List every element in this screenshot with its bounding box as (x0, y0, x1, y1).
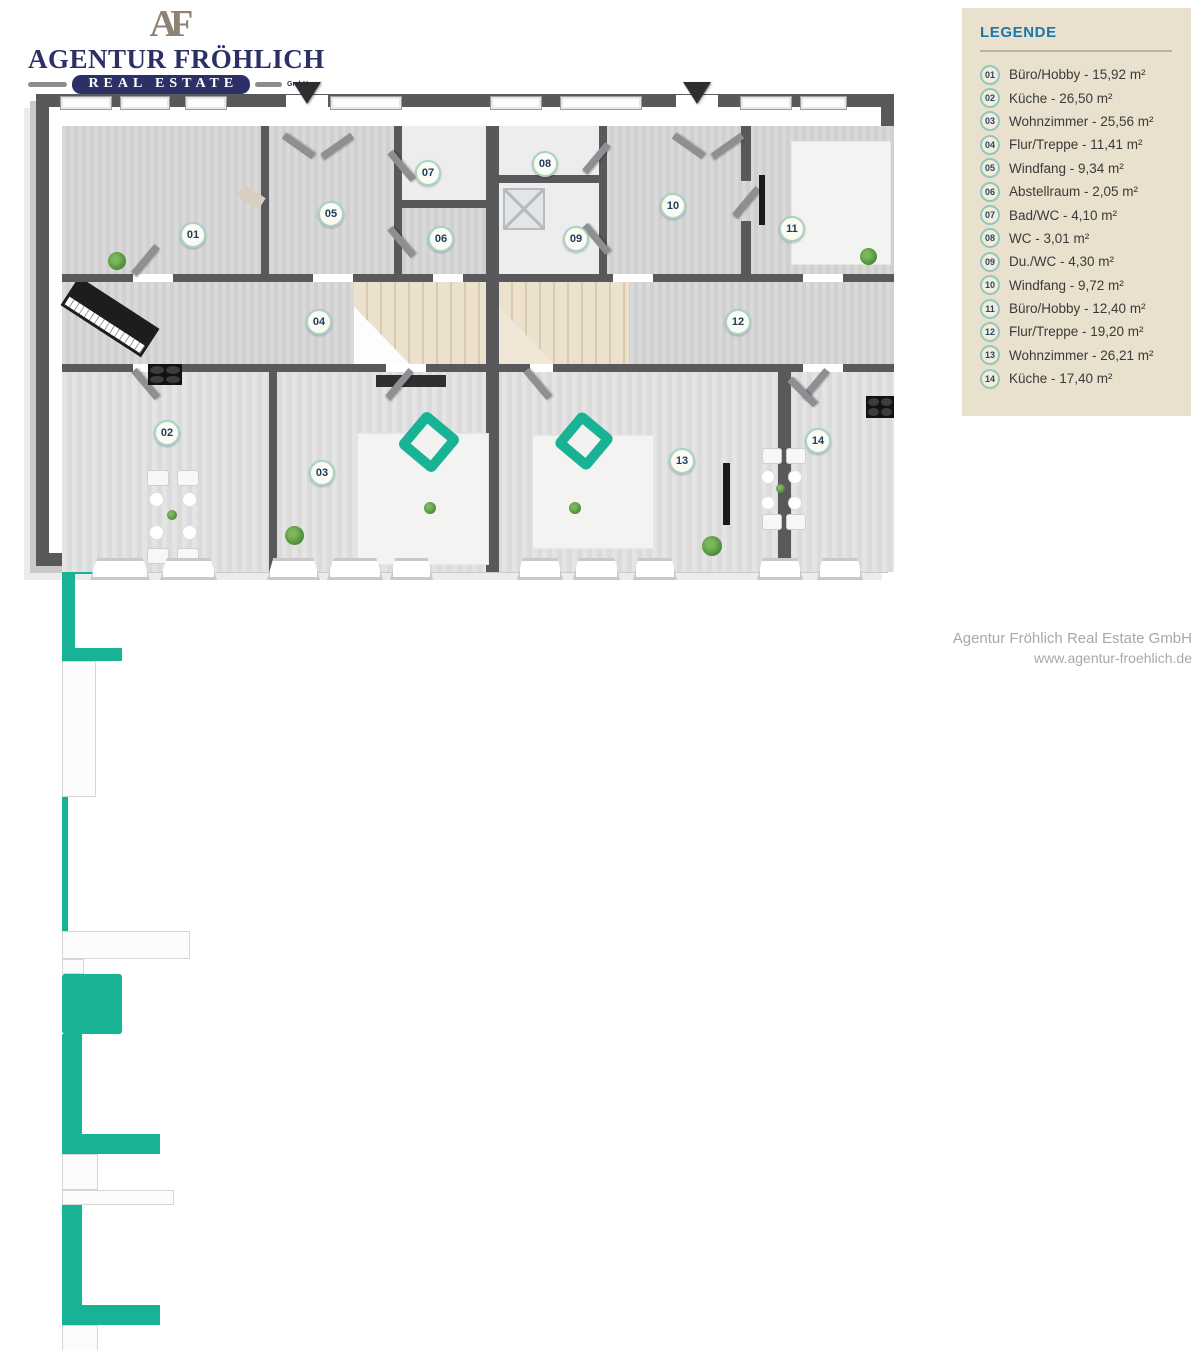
sofa-13-seatrow (62, 1305, 160, 1325)
floor-plan-interior: 01 05 07 06 08 09 10 11 04 12 02 03 13 1… (62, 126, 894, 572)
legend-item-label: Büro/Hobby - 12,40 m² (1009, 301, 1146, 316)
legend-item-number: 11 (980, 299, 1000, 319)
legend-item-number: 01 (980, 65, 1000, 85)
sofa-03-back (62, 1034, 82, 1134)
dining-table-02 (62, 974, 122, 1034)
building-outline: 01 05 07 06 08 09 10 11 04 12 02 03 13 1… (36, 94, 894, 566)
legend-item-label: WC - 3,01 m² (1009, 231, 1089, 246)
wall-corridor-top (463, 274, 613, 282)
footer-company: Agentur Fröhlich Real Estate GmbH (953, 629, 1192, 649)
wall-07-06 (402, 200, 486, 208)
chair-02 (177, 470, 199, 486)
legend-item-label: Bad/WC - 4,10 m² (1009, 208, 1117, 223)
plate (149, 492, 164, 507)
room-badge-02: 02 (154, 420, 180, 446)
legend-item-label: Flur/Treppe - 11,41 m² (1009, 137, 1143, 152)
legend-item-label: Windfang - 9,34 m² (1009, 161, 1124, 176)
window-top (490, 96, 542, 110)
wall-corridor-bottom (553, 364, 803, 372)
legend-list: 01Büro/Hobby - 15,92 m² 02Küche - 26,50 … (980, 63, 1191, 390)
legend-item-number: 12 (980, 322, 1000, 342)
sofa-11-back (62, 574, 75, 648)
coffee-table-13 (62, 1325, 98, 1350)
room-badge-11: 11 (779, 216, 805, 242)
bay-window (90, 558, 150, 580)
entrance-arrow-icon (683, 82, 711, 104)
legend-item: 06Abstellraum - 2,05 m² (980, 180, 1191, 203)
legend-item-number: 03 (980, 111, 1000, 131)
coffee-table-03 (62, 1154, 98, 1190)
legend-panel: LEGENDE 01Büro/Hobby - 15,92 m² 02Küche … (962, 8, 1191, 416)
legend-item: 01Büro/Hobby - 15,92 m² (980, 63, 1191, 86)
bathroom-07-floor (402, 126, 486, 200)
table-plant-03 (424, 502, 436, 514)
legend-item: 09Du./WC - 4,30 m² (980, 250, 1191, 273)
table-plant-13 (569, 502, 581, 514)
sofa-03-cushions (409, 478, 465, 546)
sofa-11-arm (62, 648, 122, 661)
table-plant-14 (776, 484, 785, 493)
legend-item-label: Windfang - 9,72 m² (1009, 278, 1124, 293)
shower-09 (503, 188, 545, 230)
wall-10-11-lower (741, 221, 751, 274)
legend-item-number: 04 (980, 135, 1000, 155)
room-badge-08: 08 (532, 151, 558, 177)
logo-monogram-icon: AF (28, 4, 308, 44)
window-top (60, 96, 112, 110)
window-top (330, 96, 402, 110)
legend-item-number: 06 (980, 182, 1000, 202)
bay-window (757, 558, 803, 580)
tv-13 (723, 463, 730, 525)
legend-item-label: Wohnzimmer - 26,21 m² (1009, 348, 1154, 363)
legend-item-label: Küche - 26,50 m² (1009, 91, 1113, 106)
wall-corridor-bottom (843, 364, 894, 372)
entrance-arrow-icon (293, 82, 321, 104)
room-badge-06: 06 (428, 226, 454, 252)
legend-item-number: 05 (980, 158, 1000, 178)
sink-02 (62, 959, 84, 974)
legend-item: 08WC - 3,01 m² (980, 227, 1191, 250)
window-top (800, 96, 847, 110)
legend-item-number: 13 (980, 345, 1000, 365)
legend-item: 12Flur/Treppe - 19,20 m² (980, 320, 1191, 343)
cooktop-14 (866, 396, 894, 418)
plate (182, 525, 197, 540)
legend-item: 03Wohnzimmer - 25,56 m² (980, 110, 1191, 133)
wall-corridor-top (173, 274, 313, 282)
chair-14 (786, 514, 806, 530)
legend-divider (980, 50, 1172, 52)
wall-10-11-upper (741, 126, 751, 181)
room-badge-09: 09 (563, 226, 589, 252)
logo-brand-name: AGENTUR FRÖHLICH (28, 44, 308, 74)
plant-13 (702, 536, 722, 556)
sofa-03-seatrow (62, 1134, 160, 1154)
room-badge-05: 05 (318, 201, 344, 227)
footer-website: www.agentur-froehlich.de (953, 649, 1192, 667)
room-badge-13: 13 (669, 448, 695, 474)
legend-item: 05Windfang - 9,34 m² (980, 157, 1191, 180)
legend-item: 10Windfang - 9,72 m² (980, 274, 1191, 297)
chair-14 (786, 448, 806, 464)
bay-window (573, 558, 620, 580)
banner-line-right (255, 82, 282, 87)
legend-item-number: 02 (980, 88, 1000, 108)
legend-item-number: 07 (980, 205, 1000, 225)
room-badge-12: 12 (725, 309, 751, 335)
plant-03 (285, 526, 304, 545)
chair-14 (762, 448, 782, 464)
room-badge-10: 10 (660, 193, 686, 219)
chair-14 (762, 514, 782, 530)
plant-01 (108, 252, 126, 270)
legend-item-label: Abstellraum - 2,05 m² (1009, 184, 1138, 199)
legend-item: 04Flur/Treppe - 11,41 m² (980, 133, 1191, 156)
plate (761, 470, 775, 484)
legend-item-number: 08 (980, 228, 1000, 248)
bay-window (327, 558, 383, 580)
staircase-right (499, 282, 629, 364)
legend-item-number: 14 (980, 369, 1000, 389)
window-top (120, 96, 170, 110)
bay-window (160, 558, 217, 580)
legend-item-label: Flur/Treppe - 19,20 m² (1009, 324, 1144, 339)
legend-item-label: Küche - 17,40 m² (1009, 371, 1113, 386)
bay-window (517, 558, 563, 580)
wall-corridor-bottom (426, 364, 530, 372)
legend-item: 11Büro/Hobby - 12,40 m² (980, 297, 1191, 320)
chair-02 (147, 470, 169, 486)
room-badge-01: 01 (180, 222, 206, 248)
legend-item-label: Du./WC - 4,30 m² (1009, 254, 1114, 269)
agency-logo: AF AGENTUR FRÖHLICH REAL ESTATE GmbH (28, 4, 308, 94)
kitchen-02-worktop (62, 931, 190, 959)
kitchen-02-counter-front (62, 797, 68, 931)
sofa-13-back (62, 1205, 82, 1305)
footer: Agentur Fröhlich Real Estate GmbH www.ag… (953, 629, 1192, 667)
table-plant-02 (167, 510, 177, 520)
wall-corridor-top (653, 274, 803, 282)
staircase-left (354, 282, 486, 364)
legend-item: 07Bad/WC - 4,10 m² (980, 203, 1191, 226)
window-top (560, 96, 642, 110)
bay-window (267, 558, 320, 580)
stair-landing (499, 282, 629, 364)
chair-02 (147, 548, 169, 564)
stair-landing (354, 282, 486, 364)
room-badge-14: 14 (805, 428, 831, 454)
room-badge-03: 03 (309, 460, 335, 486)
legend-item: 13Wohnzimmer - 26,21 m² (980, 344, 1191, 367)
legend-item-label: Büro/Hobby - 15,92 m² (1009, 67, 1146, 82)
legend-item-number: 09 (980, 252, 1000, 272)
cooktop-02 (148, 364, 182, 385)
plate (182, 492, 197, 507)
tv-11 (759, 175, 765, 225)
window-top (185, 96, 227, 110)
wall-corridor-top (843, 274, 894, 282)
sideboard-13 (62, 1190, 174, 1205)
plate (788, 496, 802, 510)
legend-item: 02Küche - 26,50 m² (980, 86, 1191, 109)
bay-window (390, 558, 433, 580)
wall-corridor-bottom (62, 364, 133, 372)
legend-title: LEGENDE (980, 24, 1191, 41)
wall-corridor-top (353, 274, 433, 282)
plate (788, 470, 802, 484)
sofa-11-cushions (832, 182, 878, 228)
room-badge-07: 07 (415, 160, 441, 186)
wall-corridor-top (62, 274, 133, 282)
wall-05-07 (394, 126, 402, 274)
tv-board-03 (376, 375, 446, 387)
bay-window (633, 558, 677, 580)
legend-item-number: 10 (980, 275, 1000, 295)
kitchen-02-counter (62, 661, 96, 797)
banner-line-left (28, 82, 67, 87)
legend-item: 14Küche - 17,40 m² (980, 367, 1191, 390)
bay-window (817, 558, 863, 580)
wall-corridor-bottom (173, 364, 386, 372)
wall-02-03 (269, 372, 277, 572)
plant-11 (860, 248, 877, 265)
window-top (740, 96, 792, 110)
room-badge-04: 04 (306, 309, 332, 335)
floor-plan: 01 05 07 06 08 09 10 11 04 12 02 03 13 1… (36, 88, 894, 588)
plate (761, 496, 775, 510)
plate (149, 525, 164, 540)
legend-item-label: Wohnzimmer - 25,56 m² (1009, 114, 1154, 129)
